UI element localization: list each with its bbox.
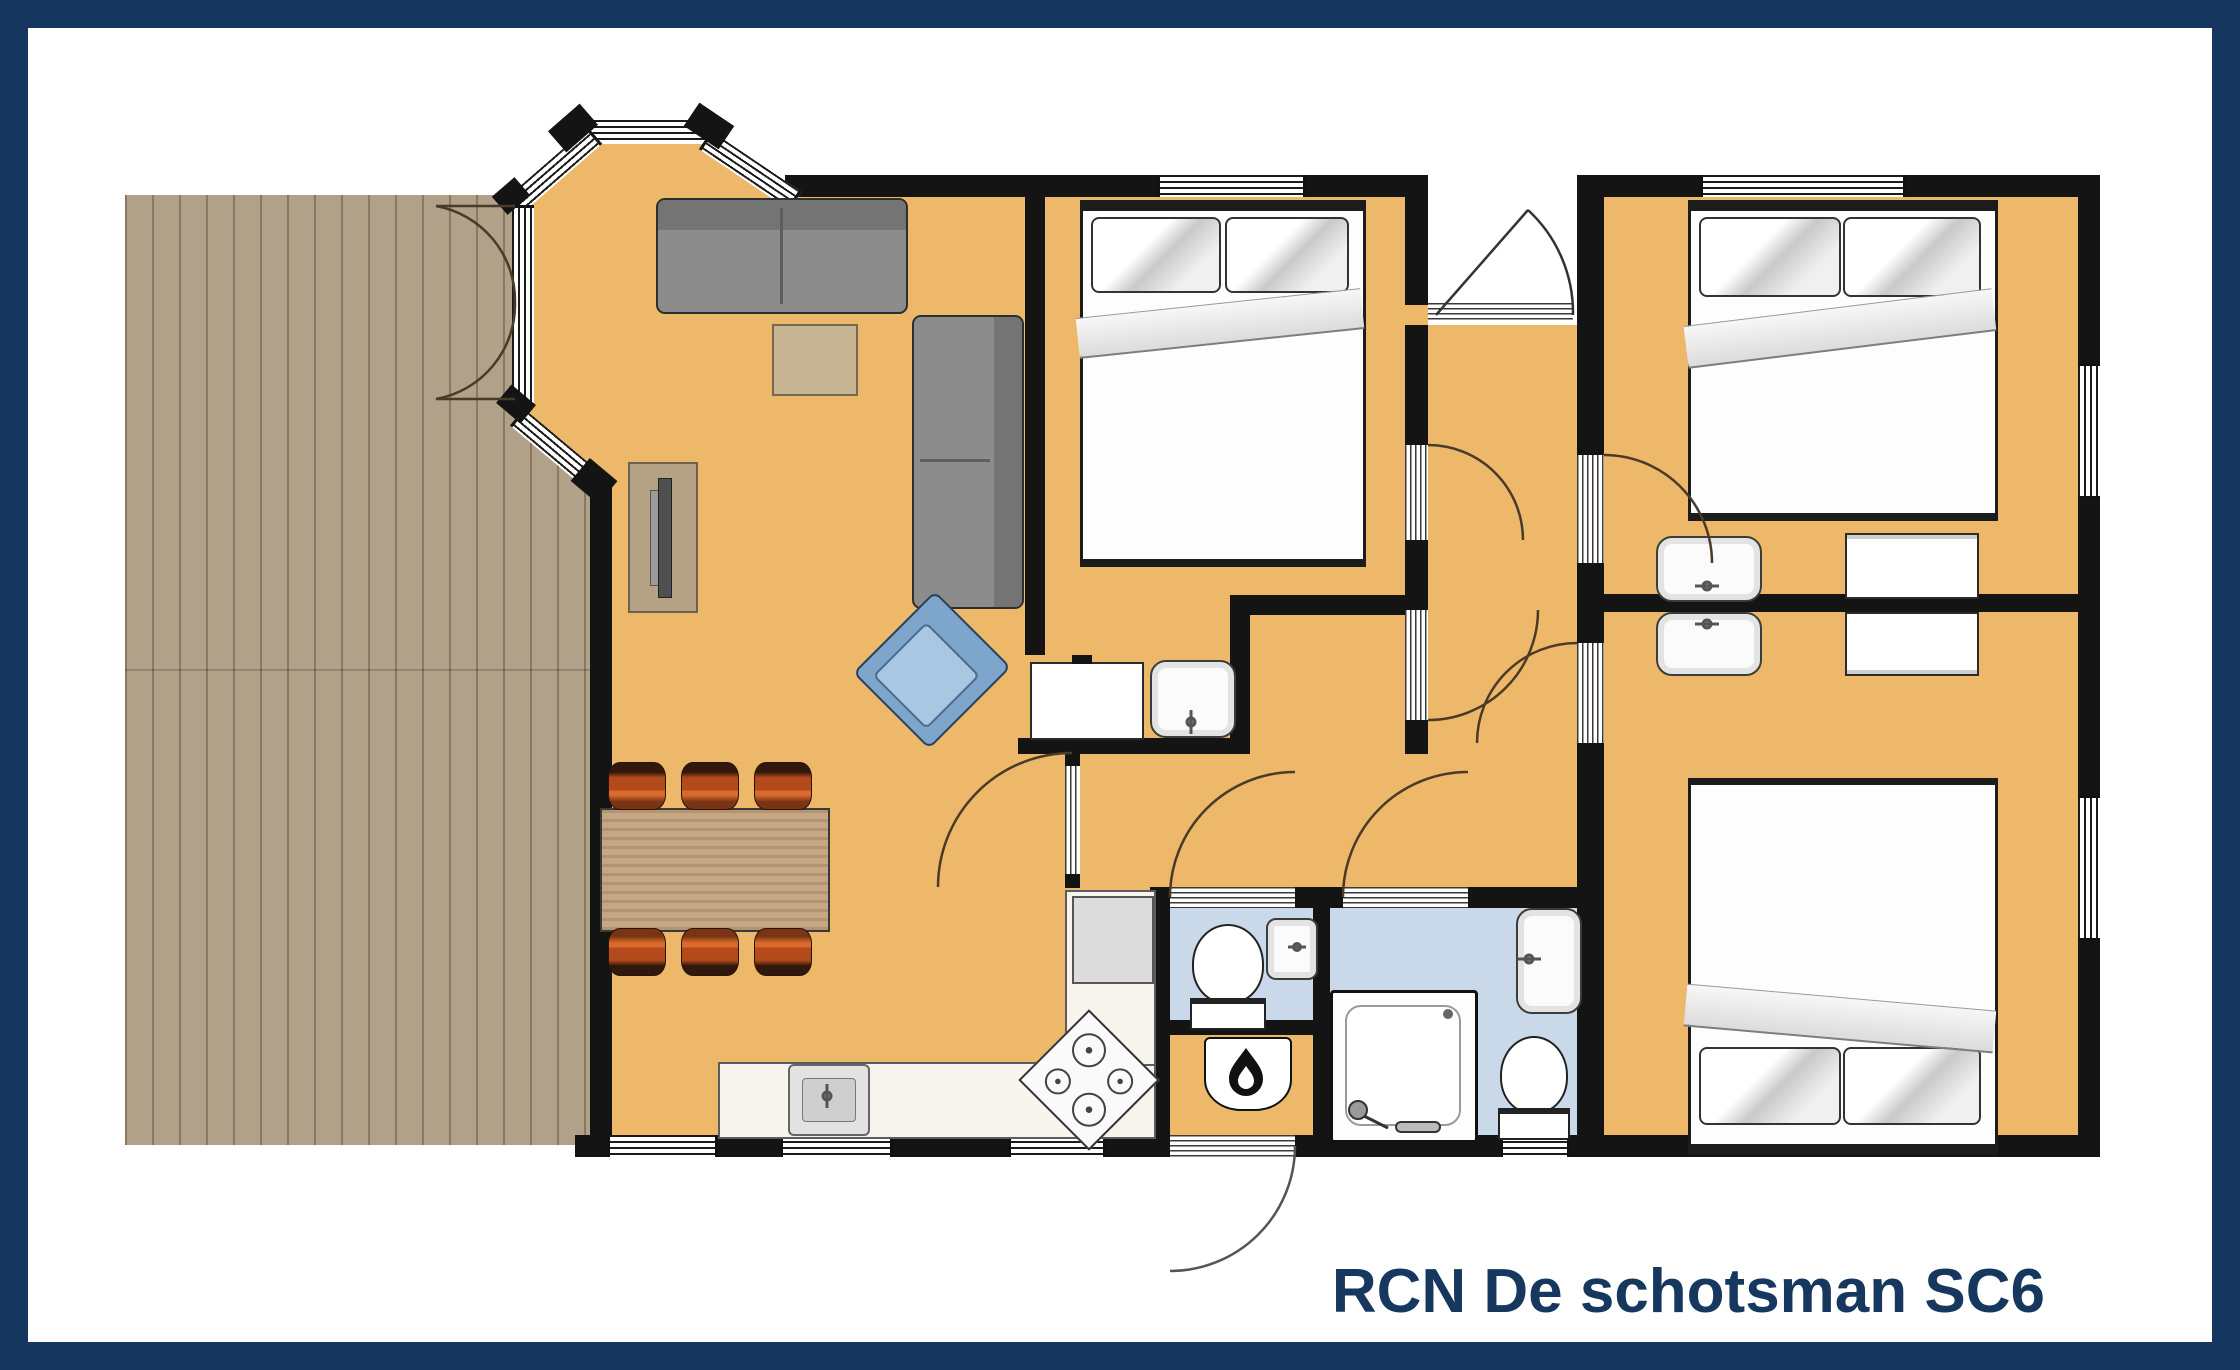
door-swing-arc — [436, 206, 515, 302]
shower-hose — [1364, 1116, 1388, 1128]
plan-title: RCN De schotsman SC6 — [1332, 1256, 2045, 1327]
door-swing-arc — [1604, 455, 1712, 563]
shower-rail — [1396, 1122, 1440, 1132]
door-swing-arc — [1428, 610, 1538, 720]
shower-drain — [1443, 1009, 1453, 1019]
door-swing-arc — [436, 302, 515, 399]
back-door-swing-arc — [1170, 1146, 1295, 1271]
front-door-swing-arc — [1528, 210, 1573, 315]
door-swing-arc — [1170, 772, 1295, 897]
floor-plan-image: RCN De schotsman SC6 — [0, 0, 2240, 1370]
door-swing-layer — [0, 0, 2240, 1370]
door-swing-arc — [1428, 445, 1523, 540]
door-swing-arc — [1343, 772, 1468, 897]
flame-icon — [1229, 1048, 1263, 1096]
door-swing-arc — [938, 753, 1072, 887]
front-door-leaf — [1436, 210, 1528, 315]
